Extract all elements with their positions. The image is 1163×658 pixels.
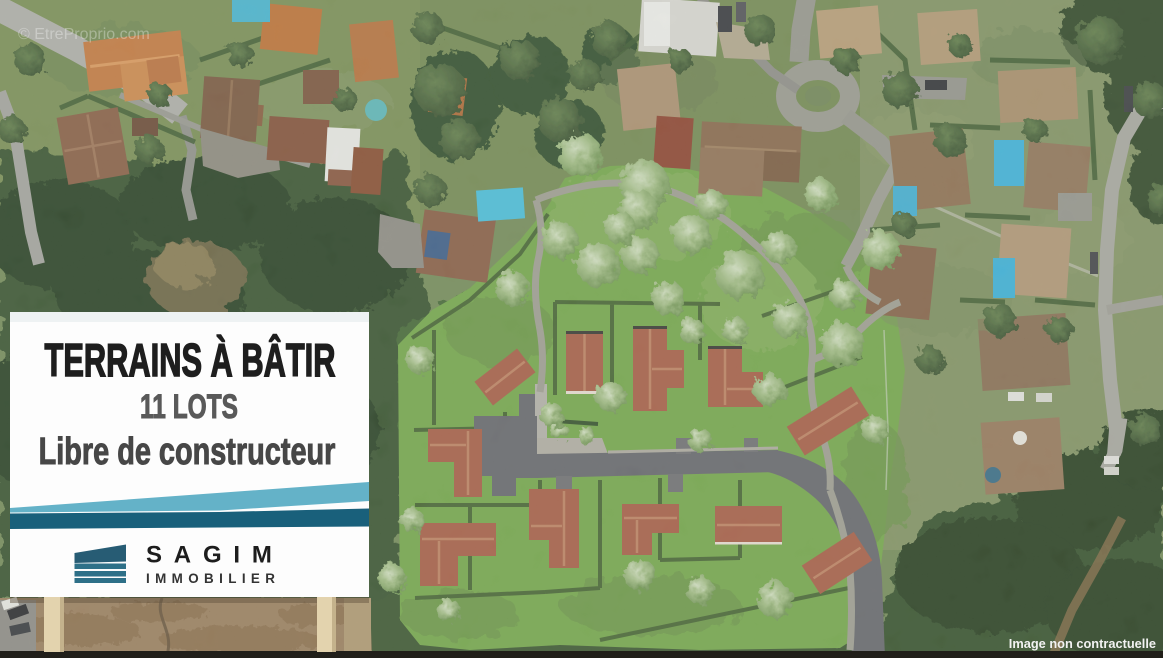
svg-text:SAGIM: SAGIM (146, 542, 284, 569)
svg-text:Libre de constructeur: Libre de constructeur (39, 430, 336, 473)
svg-text:© EtreProprio.com: © EtreProprio.com (18, 26, 150, 43)
svg-text:IMMOBILIER: IMMOBILIER (146, 571, 280, 586)
svg-text:Image non contractuelle: Image non contractuelle (1009, 636, 1156, 651)
svg-text:TERRAINS À BÂTIR: TERRAINS À BÂTIR (45, 335, 336, 387)
svg-text:11 LOTS: 11 LOTS (140, 388, 238, 426)
